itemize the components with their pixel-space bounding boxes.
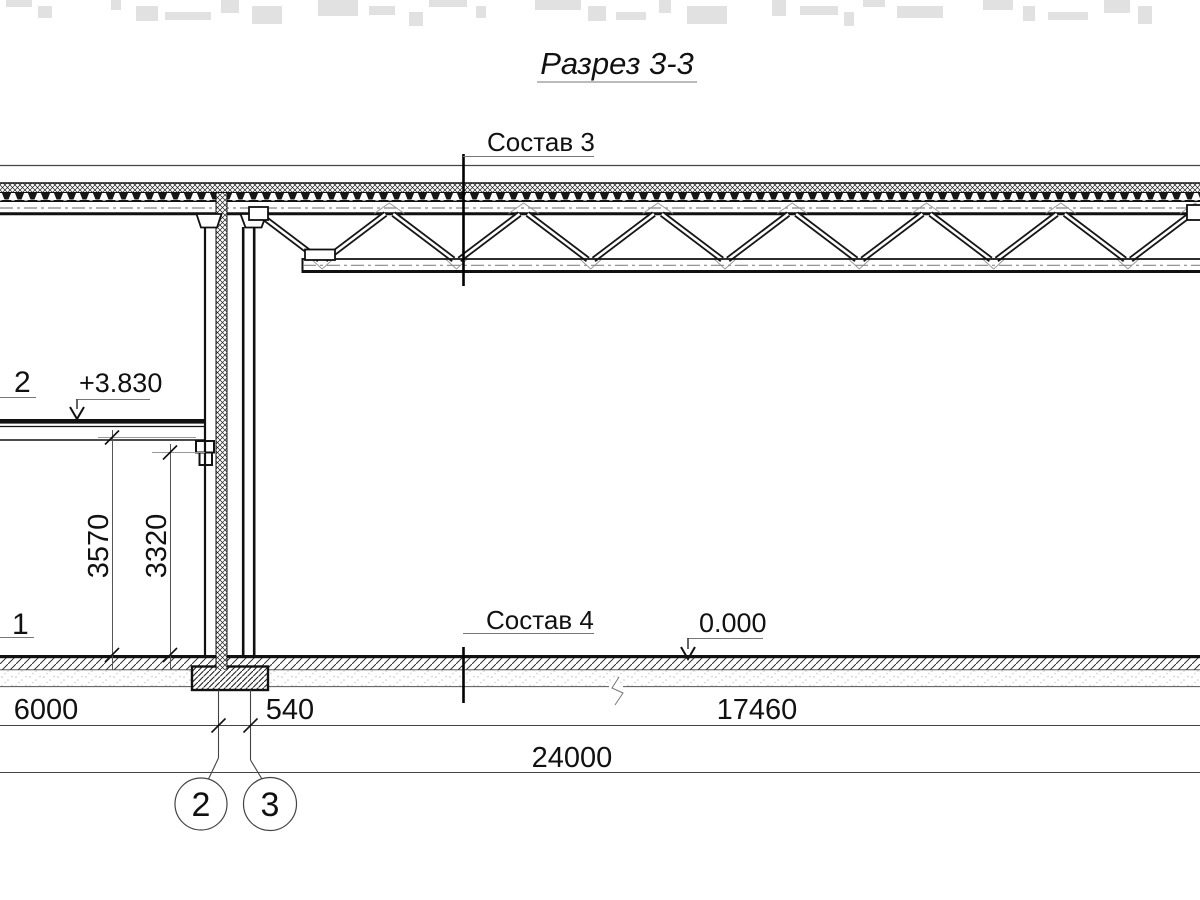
edge-labels: 2 1 bbox=[0, 366, 36, 641]
floor-zero-hatch bbox=[0, 658, 1200, 670]
wall-bearing-pad bbox=[197, 214, 222, 228]
composition3-label: Состав 3 bbox=[487, 127, 595, 157]
dim-text-24000: 24000 bbox=[532, 742, 613, 774]
floor-zero-top-line bbox=[0, 655, 1200, 658]
page-title: Разрез 3-3 bbox=[540, 46, 694, 81]
bottom-node-mark bbox=[983, 259, 1005, 269]
axis2-leader bbox=[209, 758, 219, 779]
truss-diagonal bbox=[528, 214, 588, 260]
roof-assembly bbox=[0, 166, 1200, 214]
truss-diagonal bbox=[728, 214, 788, 260]
noise-block bbox=[1048, 12, 1088, 20]
foundation-outline bbox=[192, 667, 268, 691]
noise-block bbox=[616, 12, 646, 20]
truss-diagonal bbox=[393, 214, 453, 260]
noise-block bbox=[800, 6, 838, 15]
truss-end-bracket-right bbox=[1187, 205, 1200, 220]
noise-block bbox=[318, 0, 358, 16]
break-mask bbox=[609, 684, 623, 690]
ground-slab bbox=[0, 655, 1200, 705]
roof-insulation-layer bbox=[0, 183, 1200, 193]
title-block: Разрез 3-3 bbox=[537, 46, 697, 82]
bottom-node-mark bbox=[848, 259, 870, 269]
cropped-text-noise bbox=[6, 0, 1152, 26]
truss-diagonal bbox=[1131, 214, 1191, 260]
truss-diagonal bbox=[662, 214, 722, 260]
truss-diagonal bbox=[796, 214, 856, 260]
slab-finish-line bbox=[0, 419, 205, 424]
noise-block bbox=[409, 12, 423, 26]
noise-block bbox=[535, 0, 581, 10]
vertical-dimensions: 3570 3320 bbox=[83, 430, 205, 670]
noise-block bbox=[844, 12, 854, 26]
grid-axes: 2 3 bbox=[175, 758, 297, 831]
dim-text-17460: 17460 bbox=[717, 694, 798, 726]
noise-block bbox=[221, 0, 239, 13]
truss-diagonal bbox=[862, 214, 922, 260]
axis3-leader bbox=[251, 760, 263, 779]
truss-diagonal bbox=[997, 214, 1057, 260]
axis-label-2: 2 bbox=[192, 786, 211, 824]
section-drawing: Разрез 3-3 bbox=[0, 0, 1200, 900]
noise-block bbox=[687, 6, 727, 24]
noise-block bbox=[111, 0, 121, 10]
elevation-3830-label: +3.830 bbox=[79, 368, 162, 398]
noise-block bbox=[476, 6, 486, 18]
profiled-deck-layer bbox=[0, 193, 1200, 201]
edge-label-1: 1 bbox=[12, 608, 29, 641]
truss-diagonal bbox=[1065, 214, 1125, 260]
noise-block bbox=[863, 0, 885, 7]
wall-assembly bbox=[197, 193, 267, 670]
foundation-block bbox=[192, 667, 268, 691]
dim-text-3320: 3320 bbox=[141, 514, 173, 579]
noise-block bbox=[136, 6, 158, 21]
noise-block bbox=[1138, 6, 1152, 24]
bottom-node-mark bbox=[1117, 259, 1139, 269]
truss-diagonal bbox=[459, 214, 519, 260]
elevation-0000-label: 0.000 bbox=[699, 608, 767, 638]
horizontal-dimensions: 6000 540 17460 24000 bbox=[0, 690, 1200, 774]
first-panel-seat bbox=[305, 250, 335, 261]
noise-block bbox=[772, 0, 786, 16]
truss-end-bracket-left bbox=[249, 207, 268, 220]
bottom-node-mark bbox=[714, 259, 736, 269]
noise-block bbox=[983, 0, 1013, 10]
floor-zero-bedding bbox=[0, 670, 1200, 686]
composition4-label: Состав 4 bbox=[486, 605, 594, 635]
dim-text-6000: 6000 bbox=[14, 694, 79, 726]
noise-block bbox=[252, 6, 282, 24]
dim-text-3570: 3570 bbox=[83, 514, 115, 579]
drawing-sheet: Разрез 3-3 bbox=[0, 0, 1200, 900]
noise-block bbox=[38, 6, 52, 18]
wall-panel-insulation bbox=[216, 193, 227, 670]
noise-block bbox=[429, 0, 467, 7]
noise-block bbox=[369, 6, 395, 15]
dim-text-540: 540 bbox=[266, 694, 314, 726]
noise-block bbox=[6, 0, 32, 7]
edge-label-2: 2 bbox=[14, 366, 31, 399]
noise-block bbox=[1023, 6, 1035, 21]
noise-block bbox=[659, 0, 671, 13]
noise-block bbox=[897, 6, 943, 18]
noise-block bbox=[588, 6, 606, 21]
noise-block bbox=[1104, 0, 1130, 13]
truss-diagonal bbox=[931, 214, 991, 260]
truss-diagonal bbox=[594, 214, 654, 260]
bottom-node-mark bbox=[580, 259, 602, 269]
noise-block bbox=[165, 12, 211, 20]
elevation-marks: +3.830 0.000 bbox=[70, 368, 767, 659]
axis-label-3: 3 bbox=[261, 786, 280, 824]
